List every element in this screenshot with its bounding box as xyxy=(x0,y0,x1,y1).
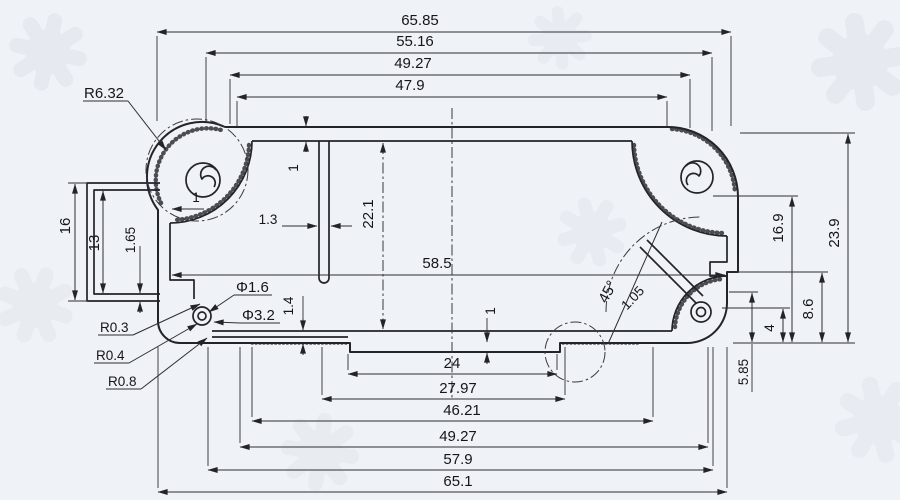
radius-label-fillet-a: R0.3 xyxy=(100,320,129,335)
dim-label-bottom-3: 46.21 xyxy=(443,402,481,419)
radius-label-fillet-b: R0.4 xyxy=(96,348,125,363)
dim-label-bottom-1: 24 xyxy=(444,355,461,372)
dim-label-foot: 1 xyxy=(483,307,498,315)
dim-label-rib: 1.3 xyxy=(259,212,278,227)
dim-label-top-2: 55.16 xyxy=(396,33,434,50)
diameter-label-hole: Φ1.6 xyxy=(236,279,269,296)
dim-label-top-3: 49.27 xyxy=(394,55,432,72)
scanned-technical-drawing: 65.85 55.16 49.27 47.9 24 27.97 46.21 xyxy=(0,0,900,500)
radius-label-boss: R6.32 xyxy=(84,85,124,102)
dim-label-top-4: 47.9 xyxy=(395,77,424,94)
extrusion-profile-drawing: 65.85 55.16 49.27 47.9 24 27.97 46.21 xyxy=(0,0,900,500)
dim-label-top-wall: 1 xyxy=(286,164,301,172)
dim-label-side-wall: 1 xyxy=(192,190,200,205)
dim-label-right-overall: 23.9 xyxy=(826,218,843,247)
dim-label-bottom-2: 27.97 xyxy=(439,380,477,397)
dim-label-bottom-5: 57.9 xyxy=(443,451,472,468)
dim-label-bottom-4: 49.27 xyxy=(439,428,477,445)
dim-label-right-notch: 4 xyxy=(762,324,777,332)
dim-label-cavity-width: 58.5 xyxy=(422,255,451,272)
dim-label-flange-inner: 13 xyxy=(86,235,103,252)
dim-label-cavity-height: 22.1 xyxy=(360,199,377,228)
dim-label-right-upper: 16.9 xyxy=(770,213,787,242)
dim-label-top-overall: 65.85 xyxy=(401,12,439,29)
dim-label-right-step: 5.85 xyxy=(736,359,751,385)
radius-label-fillet-c: R0.8 xyxy=(108,374,137,389)
dim-label-flange-wall: 1.65 xyxy=(123,227,138,253)
diameter-label-counterbore: Φ3.2 xyxy=(242,307,275,324)
dim-label-flange-outer: 16 xyxy=(57,218,74,235)
dim-label-right-lower: 8.6 xyxy=(800,299,817,320)
dim-label-floor: 1.4 xyxy=(281,296,296,315)
dim-label-bottom-overall: 65.1 xyxy=(443,473,472,490)
